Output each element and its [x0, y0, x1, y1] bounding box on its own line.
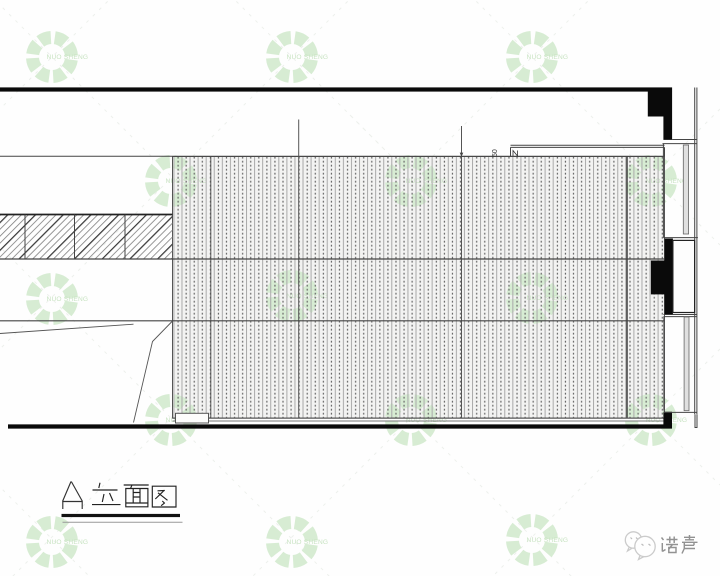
svg-text:50: 50 [492, 149, 499, 157]
